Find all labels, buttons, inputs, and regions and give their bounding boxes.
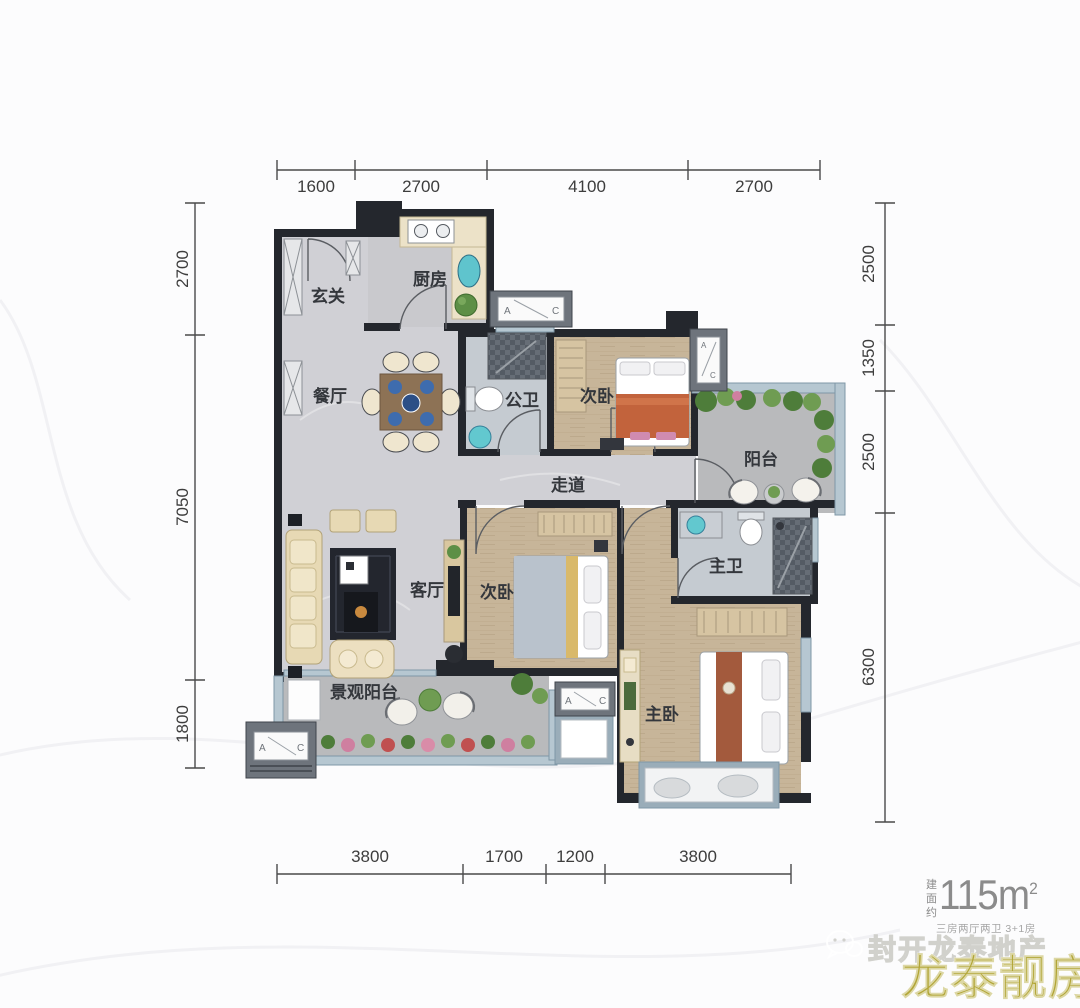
area-superscript: 2	[1029, 879, 1037, 898]
label-corridor: 走道	[551, 475, 585, 495]
area-number: 115m	[939, 871, 1029, 918]
dim-top-1: 2700	[402, 177, 440, 196]
dim-top-2: 4100	[568, 177, 606, 196]
ac-letter-c: C	[599, 696, 606, 707]
dim-bottom-1: 1700	[485, 847, 523, 866]
dim-left: 2700 7050 1800	[173, 203, 205, 768]
area-prefix: 建面约	[926, 879, 939, 920]
label-balcony: 阳台	[744, 449, 778, 469]
ac-unit-mid: A C	[555, 682, 615, 716]
ac-letter-c: C	[552, 306, 559, 317]
floor-lamp	[288, 514, 302, 526]
storage-box	[288, 680, 320, 720]
dim-right: 2500 1350 2500 6300	[859, 203, 895, 822]
dim-bottom-0: 3800	[351, 847, 389, 866]
bath-sink	[469, 426, 491, 448]
label-entry: 玄关	[311, 286, 345, 306]
balcony-right-window	[835, 383, 845, 515]
dim-bottom-2: 1200	[556, 847, 594, 866]
label-master-bedroom: 主卧	[645, 704, 679, 724]
dim-left-1: 7050	[173, 488, 192, 526]
area-value: 115m2	[939, 874, 1037, 916]
label-view-balcony: 景观阳台	[330, 682, 398, 702]
ac-letter-c: C	[297, 743, 304, 754]
label-dining: 餐厅	[313, 386, 347, 406]
dim-right-1: 1350	[859, 339, 878, 377]
ac-unit-bottom-left: A C	[246, 722, 316, 778]
label-master-bath: 主卫	[709, 556, 743, 576]
label-kitchen: 厨房	[413, 269, 447, 289]
master-right-window	[801, 638, 811, 712]
dim-top-0: 1600	[297, 177, 335, 196]
wechat-icon	[824, 929, 864, 968]
burner	[437, 225, 450, 238]
toilet	[475, 387, 503, 411]
ac-unit-top: A C	[490, 291, 572, 327]
ac-letter-a: A	[565, 696, 572, 707]
ac-letter-a: A	[259, 743, 266, 754]
dim-bottom: 3800 1700 1200 3800	[277, 847, 791, 884]
nightstand	[594, 540, 608, 552]
ac-letter-a: A	[701, 341, 707, 350]
centerpiece	[402, 394, 420, 412]
dim-right-0: 2500	[859, 245, 878, 283]
label-bedroom-top: 次卧	[580, 386, 614, 406]
ottoman	[330, 510, 360, 532]
toilet-tank	[466, 387, 475, 411]
ac-unit-right-vertical: A C	[690, 329, 727, 391]
dim-left-2: 1800	[173, 705, 192, 743]
dim-top: 1600 2700 4100 2700	[277, 160, 820, 196]
balcony-plant	[419, 689, 441, 711]
dim-bottom-3: 3800	[679, 847, 717, 866]
dim-right-2: 2500	[859, 433, 878, 471]
ottoman	[366, 510, 396, 532]
kitchen-sink	[458, 255, 480, 287]
label-guest-bath: 公卫	[505, 391, 539, 410]
side-table	[445, 645, 463, 663]
ac-letter-a: A	[504, 306, 511, 317]
burner	[415, 225, 428, 238]
dim-left-0: 2700	[173, 250, 192, 288]
tv	[448, 566, 460, 616]
label-living: 客厅	[409, 580, 444, 600]
bench	[600, 438, 624, 450]
ac-letter-c: C	[710, 371, 716, 380]
toilet	[740, 519, 762, 545]
vanity-sink	[687, 516, 705, 534]
wardrobe	[697, 608, 787, 636]
wardrobe	[538, 512, 612, 536]
bed-runner	[716, 652, 742, 764]
dim-top-3: 2700	[735, 177, 773, 196]
label-bedroom-mid: 次卧	[480, 582, 514, 602]
area-block: 建面约 115m2	[926, 874, 1045, 920]
brand-logo-text: 龙泰靓房	[901, 938, 1080, 1008]
dim-right-3: 6300	[859, 648, 878, 686]
kitchen-plant	[455, 294, 477, 316]
floor-plan: A C A C A C A C 玄关 厨房 餐厅	[0, 0, 1080, 988]
